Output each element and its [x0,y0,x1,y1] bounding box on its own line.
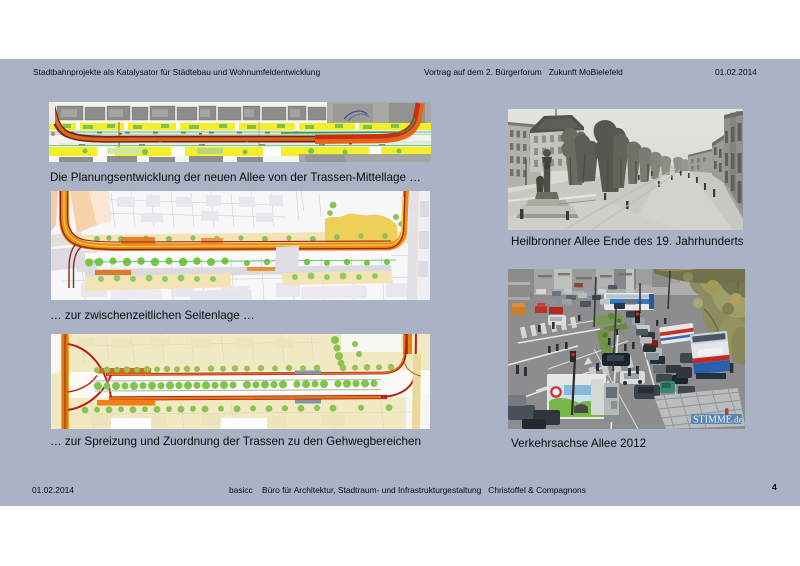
svg-text:STIMME.de: STIMME.de [693,415,743,426]
